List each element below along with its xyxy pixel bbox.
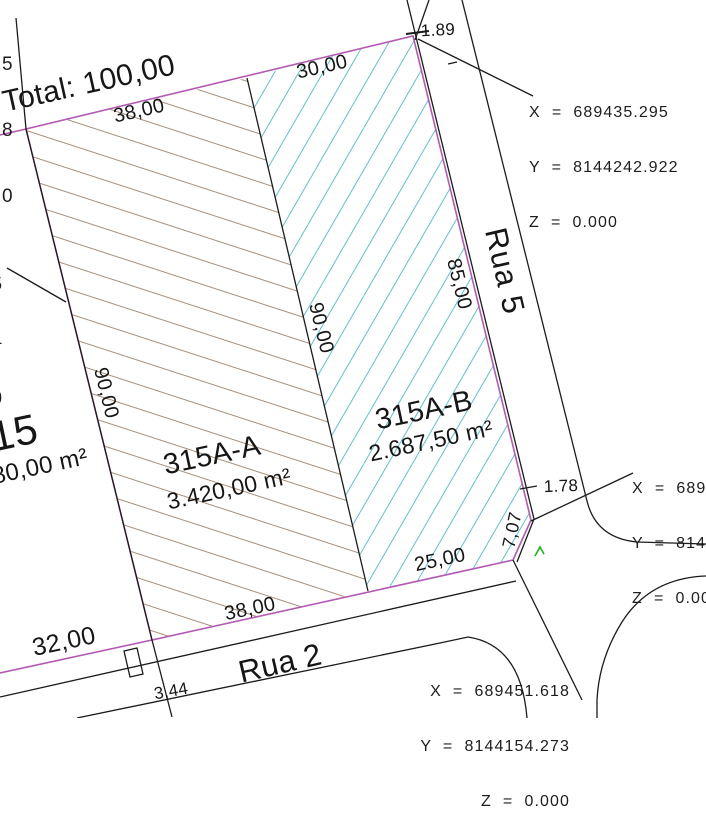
coord-bottom-z: Z = 0.000 (402, 793, 570, 811)
coordinate-fragment-top-left: 5 8 0 (2, 10, 13, 230)
fragment-digit: 5 (2, 54, 13, 76)
fragment-digit: 4 (0, 332, 2, 351)
dim-offset-1-89: 1.89 (420, 21, 455, 40)
coord-right-x: X = 689 (632, 480, 706, 498)
fragment-digit: 0 (0, 389, 2, 408)
coord-right-y: Y = 814 (632, 535, 706, 553)
coord-right-z: Z = 0.00 (632, 590, 706, 608)
coordinate-block-right-clipped: X = 689 Y = 814 Z = 0.00 (632, 443, 706, 627)
survey-marker-box (124, 648, 143, 677)
coord-top-x: X = 689435.295 (529, 104, 679, 122)
coordinate-block-bottom: X = 689451.618 Y = 8144154.273 Z = 0.000 (402, 646, 570, 830)
coordinate-fragment-mid-left: 5 4 0 (0, 237, 2, 427)
tick-dash (448, 62, 457, 64)
green-survey-mark (535, 547, 544, 556)
coord-bottom-y: Y = 8144154.273 (402, 738, 570, 756)
fragment-digit: 8 (2, 120, 13, 142)
fragment-digit: 5 (0, 275, 2, 294)
coord-top-z: Z = 0.000 (529, 214, 679, 232)
coordinate-block-top: X = 689435.295 Y = 8144242.922 Z = 0.000 (529, 67, 679, 251)
cad-canvas: { "labels": { "total": "Total: 100,00", … (0, 0, 706, 718)
coord-bottom-x: X = 689451.618 (402, 683, 570, 701)
coord-top-y: Y = 8144242.922 (529, 159, 679, 177)
dim-offset-1-78: 1.78 (544, 477, 579, 495)
leader-left-coordinate (7, 268, 66, 302)
leader-top-coordinate (418, 39, 533, 96)
fragment-digit: 0 (2, 186, 13, 208)
